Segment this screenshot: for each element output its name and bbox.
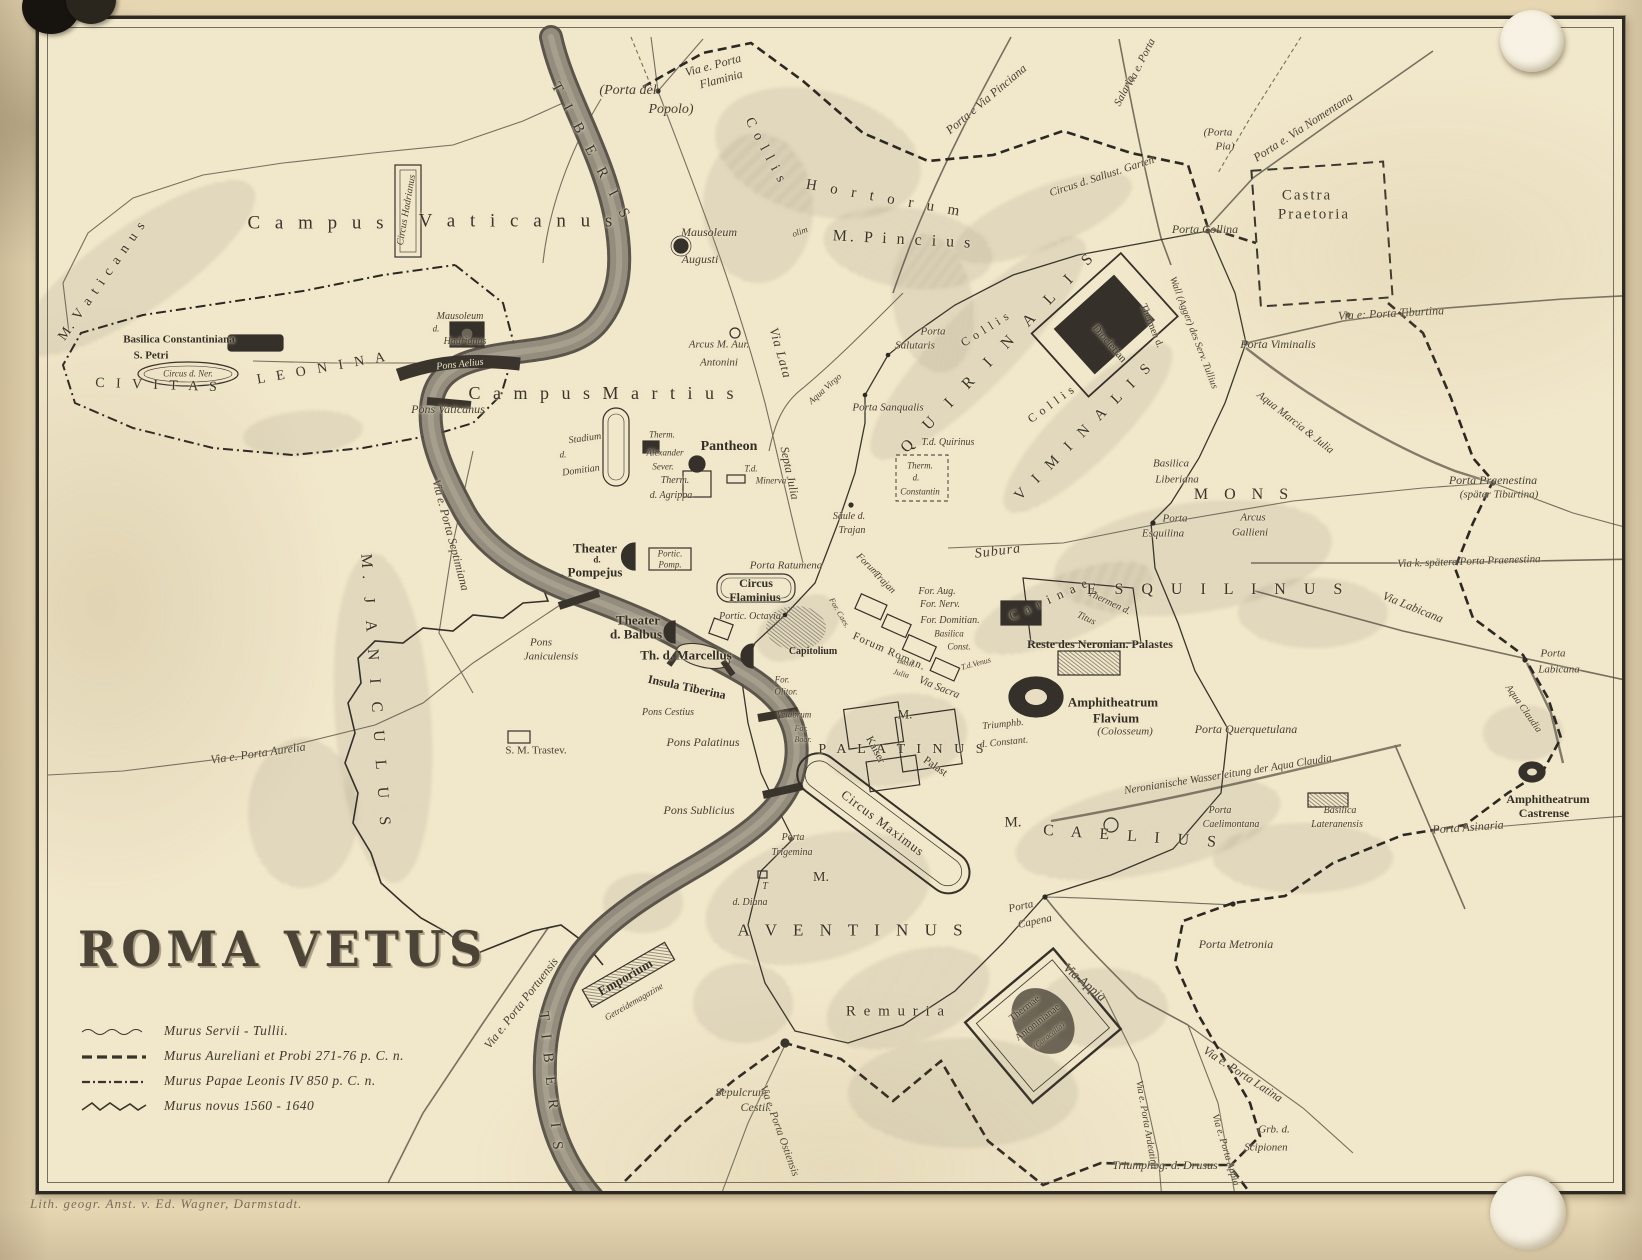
aurelian-wall-line-icon: [78, 1049, 150, 1063]
lithographer-credit: Lith. geogr. Anst. v. Ed. Wagner, Darmst…: [30, 1196, 302, 1212]
legend-item: Murus Aureliani et Probi 271-76 p. C. n.: [78, 1043, 404, 1068]
novus-wall-line-icon: [78, 1099, 150, 1113]
legend-item: Murus Servii - Tullii.: [78, 1018, 404, 1043]
scanned-map-page: C a m p u sV a t i c a n u sCircus Hadri…: [0, 0, 1642, 1260]
map-legend: Murus Servii - Tullii.Murus Aureliani et…: [78, 1018, 404, 1118]
photo-corner-top-right-icon: [1500, 10, 1564, 72]
photo-corner-bottom-right-icon: [1490, 1176, 1566, 1250]
servian-wall-line-icon: [78, 1024, 150, 1038]
legend-label: Murus novus 1560 - 1640: [164, 1098, 314, 1114]
legend-item: Murus novus 1560 - 1640: [78, 1093, 404, 1118]
legend-item: Murus Papae Leonis IV 850 p. C. n.: [78, 1068, 404, 1093]
legend-label: Murus Aureliani et Probi 271-76 p. C. n.: [164, 1048, 404, 1064]
map-title: ROMA VETUS: [78, 921, 487, 978]
legend-label: Murus Papae Leonis IV 850 p. C. n.: [164, 1073, 376, 1089]
legend-label: Murus Servii - Tullii.: [164, 1023, 288, 1039]
leonine-wall-line-icon: [78, 1074, 150, 1088]
